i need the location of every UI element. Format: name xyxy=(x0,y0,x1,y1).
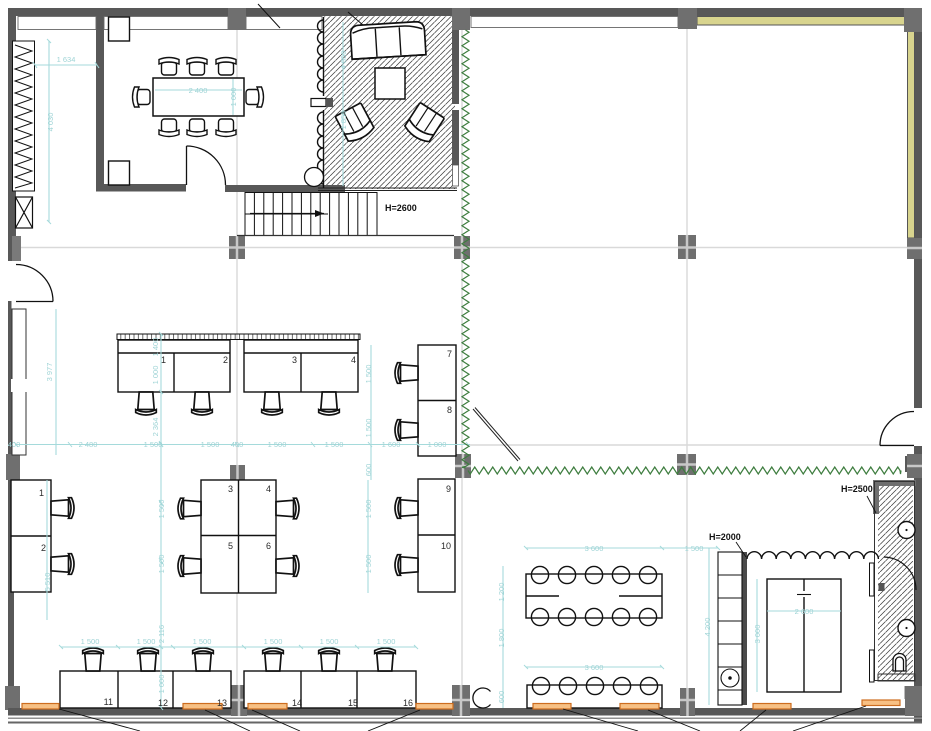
svg-text:1 200: 1 200 xyxy=(497,583,506,602)
svg-text:1 500: 1 500 xyxy=(157,500,166,519)
svg-text:1 500: 1 500 xyxy=(193,637,212,646)
svg-text:3: 3 xyxy=(292,355,297,365)
svg-text:1 500: 1 500 xyxy=(264,637,283,646)
svg-text:H=2500: H=2500 xyxy=(841,484,873,494)
svg-text:600: 600 xyxy=(364,464,373,477)
svg-text:14: 14 xyxy=(292,698,302,708)
svg-text:16: 16 xyxy=(403,698,413,708)
svg-text:2: 2 xyxy=(41,543,46,553)
svg-text:13: 13 xyxy=(217,698,227,708)
svg-text:9: 9 xyxy=(446,484,451,494)
svg-text:H=2600: H=2600 xyxy=(385,203,417,213)
svg-text:H=2000: H=2000 xyxy=(709,532,741,542)
svg-text:4 030: 4 030 xyxy=(46,113,55,132)
svg-text:1 500: 1 500 xyxy=(144,440,163,449)
svg-text:600: 600 xyxy=(497,691,506,704)
svg-text:1 400: 1 400 xyxy=(151,338,160,357)
svg-text:1 850: 1 850 xyxy=(339,111,348,130)
svg-text:1 500: 1 500 xyxy=(157,555,166,574)
svg-text:1 500: 1 500 xyxy=(364,500,373,519)
svg-text:8: 8 xyxy=(447,405,452,415)
svg-text:1 500: 1 500 xyxy=(364,419,373,438)
svg-text:4: 4 xyxy=(351,355,356,365)
svg-text:1: 1 xyxy=(39,488,44,498)
svg-text:12: 12 xyxy=(158,698,168,708)
svg-text:3 977: 3 977 xyxy=(45,363,54,382)
svg-text:1 634: 1 634 xyxy=(57,55,76,64)
svg-text:1: 1 xyxy=(161,355,166,365)
svg-text:3 600: 3 600 xyxy=(585,663,604,672)
svg-text:3 000: 3 000 xyxy=(753,625,762,644)
svg-text:4 850: 4 850 xyxy=(339,51,348,70)
svg-text:2: 2 xyxy=(223,355,228,365)
svg-text:1 500: 1 500 xyxy=(364,555,373,574)
svg-text:1 500: 1 500 xyxy=(325,440,344,449)
svg-text:1 600: 1 600 xyxy=(382,440,401,449)
svg-text:2 364: 2 364 xyxy=(151,418,160,437)
svg-text:1 800: 1 800 xyxy=(497,629,506,648)
svg-text:2 116: 2 116 xyxy=(157,625,166,643)
svg-text:2 600: 2 600 xyxy=(795,607,814,616)
svg-text:1 500: 1 500 xyxy=(377,637,396,646)
svg-text:7: 7 xyxy=(447,349,452,359)
svg-text:5 510: 5 510 xyxy=(43,573,52,592)
svg-text:10: 10 xyxy=(441,541,451,551)
svg-text:11: 11 xyxy=(104,697,113,707)
svg-text:1 500: 1 500 xyxy=(201,440,220,449)
svg-text:1 500: 1 500 xyxy=(364,365,373,384)
svg-text:6: 6 xyxy=(266,541,271,551)
svg-text:3 600: 3 600 xyxy=(585,544,604,553)
svg-text:2 400: 2 400 xyxy=(189,86,208,95)
svg-text:400: 400 xyxy=(8,440,21,449)
svg-text:5: 5 xyxy=(228,541,233,551)
svg-text:1 000: 1 000 xyxy=(151,366,160,385)
svg-text:1 500: 1 500 xyxy=(268,440,287,449)
svg-text:1 500: 1 500 xyxy=(81,637,100,646)
svg-text:1 500: 1 500 xyxy=(137,637,156,646)
svg-text:1 500: 1 500 xyxy=(320,637,339,646)
svg-text:15: 15 xyxy=(348,698,358,708)
svg-text:1 500: 1 500 xyxy=(685,544,704,553)
svg-text:4 200: 4 200 xyxy=(703,618,712,637)
svg-text:1 000: 1 000 xyxy=(428,440,447,449)
svg-text:2 480: 2 480 xyxy=(79,440,98,449)
svg-text:1 000: 1 000 xyxy=(229,88,238,107)
svg-text:3: 3 xyxy=(228,484,233,494)
svg-text:4: 4 xyxy=(266,484,271,494)
svg-text:400: 400 xyxy=(231,440,244,449)
svg-text:1 000: 1 000 xyxy=(157,675,166,694)
